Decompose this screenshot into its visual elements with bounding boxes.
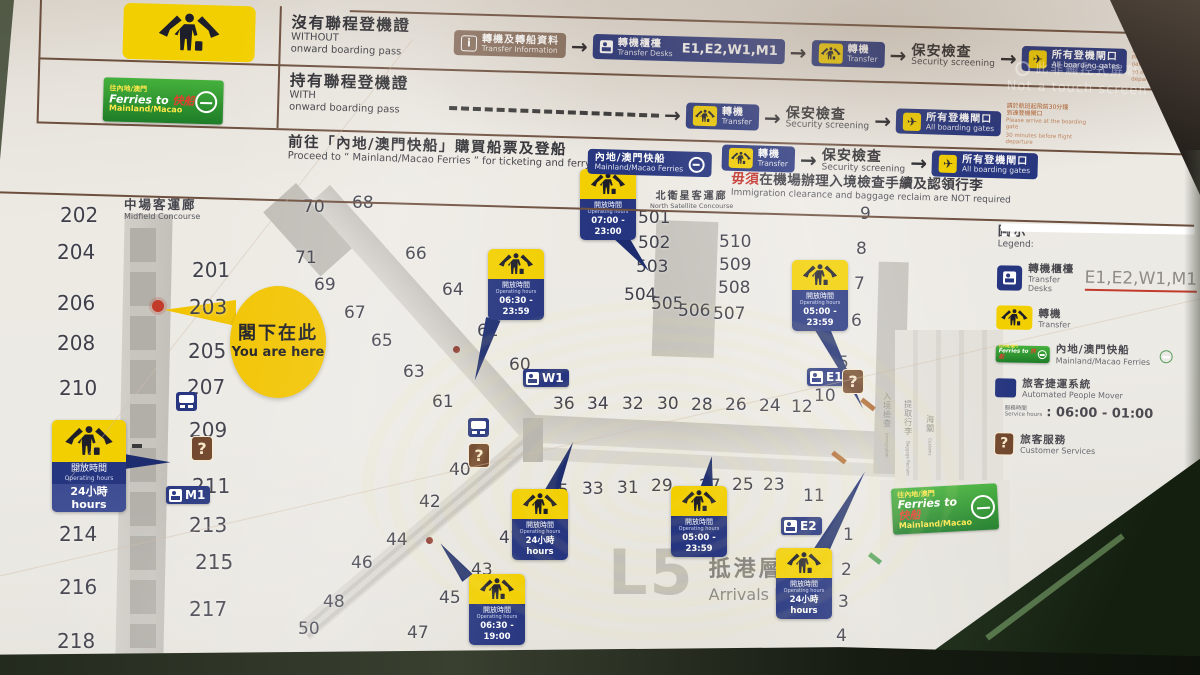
transfer-pictogram-sign <box>122 3 256 63</box>
all-boarding-gates-sign: ✈ 所有登機閘口All boarding gates <box>896 108 1002 136</box>
gate-number-label: 44 <box>386 530 408 550</box>
transfer-passenger-icon <box>792 260 848 290</box>
map-mark <box>132 444 142 448</box>
gate-number-label: 3 <box>838 592 849 612</box>
gate-number-label: 32 <box>622 394 644 414</box>
ferries-banner-icon: 往內地/澳門 Ferries to 快船 <box>996 345 1050 363</box>
operating-hours-sign: 開放時間 Operating hours 06:30 - 19:00 <box>469 574 525 645</box>
operating-hours-zh: 開放時間 <box>55 464 123 475</box>
operating-hours-sign: 開放時間 Operating hours 06:30 - 23:59 <box>488 249 544 320</box>
arrow-icon: → <box>571 34 588 58</box>
legend-transfer-desks: 轉機櫃檯Transfer Desks E1,E2,W1,M1 <box>997 262 1198 296</box>
question-mark-icon: ? <box>468 443 490 468</box>
transfer-sign: 轉機Transfer <box>721 145 795 173</box>
transfer-desk-sign: E2 <box>781 517 822 535</box>
transfer-passenger-icon <box>488 249 544 279</box>
operating-hours-sign: 開放時間 Operating hours 24小時hours <box>512 489 568 560</box>
gate-number-label: 47 <box>407 623 429 643</box>
transfer-desk-icon <box>526 372 539 385</box>
transfer-desk-sign: W1 <box>523 369 569 387</box>
ferries-banner: 往內地/澳門 Ferries to 快船 Mainland/Macao <box>103 77 224 124</box>
operating-hours-sign: 開放時間 Operating hours 05:00 - 23:59 <box>792 260 848 331</box>
operating-hours-zh: 開放時間 <box>779 580 829 588</box>
gate-number-label: 7 <box>854 274 865 294</box>
transfer-desk-icon <box>810 371 823 384</box>
all-boarding-gates-sign: ✈ 所有登機閘口All boarding gates <box>1021 46 1127 74</box>
gate-number-label: 205 <box>188 339 226 363</box>
operating-hours-en: Operating hours <box>779 588 829 594</box>
map-mark <box>152 300 164 312</box>
transfer-passenger-icon <box>137 8 242 57</box>
transfer-sign: 轉機Transfer <box>685 102 759 130</box>
apm-icon <box>995 378 1016 397</box>
gate-number-label: 510 <box>719 232 751 252</box>
gate-number-label: 24 <box>759 396 781 416</box>
gate-number-label: 219 <box>193 650 231 674</box>
transfer-desk-sign: M1 <box>166 486 210 504</box>
gate-number-label: 23 <box>763 475 785 495</box>
arrival-hall-label: 入境檢查 Immigration <box>878 392 896 457</box>
transfer-desk-icon <box>784 520 797 533</box>
transfer-desk-code: M1 <box>185 488 205 502</box>
transfer-passenger-icon <box>671 486 727 516</box>
arrival-hall-label: 海關 Customs <box>921 415 939 456</box>
operating-hours-value: 06:30 - 23:59 <box>491 296 541 316</box>
gate-number-label: 30 <box>657 394 679 414</box>
transfer-desk-code: E1 <box>826 370 843 384</box>
map-mark <box>426 537 433 544</box>
plane-icon: ✈ <box>939 155 957 173</box>
transfer-desk-icon <box>599 40 612 53</box>
map-mark <box>453 346 460 353</box>
gate-number-label: 31 <box>617 478 639 498</box>
gate-number-label: 49 <box>383 649 405 669</box>
transfer-desk-code: W1 <box>542 371 564 385</box>
gate-number-label: 25 <box>732 475 754 495</box>
you-are-here-balloon: 閣下在此 You are here <box>230 286 326 398</box>
gate-number-label: 45 <box>439 588 461 608</box>
operating-hours-en: Operating hours <box>674 526 724 532</box>
gate-number-label: 214 <box>59 522 97 546</box>
wayfinding-header: 往內地/澳門 Ferries to 快船 Mainland/Macao 沒有聯程… <box>0 0 1200 232</box>
midfield-concourse-core <box>130 228 156 648</box>
arrow-icon: → <box>800 148 817 172</box>
legend-apm-hours: 服務時間Service hours : 06:00 - 01:00 <box>1005 404 1195 422</box>
gate-number-label: 202 <box>60 203 98 227</box>
gate-number-label: 11 <box>803 486 825 506</box>
west-junction-shape <box>523 418 543 462</box>
gate-number-label: 46 <box>351 553 373 573</box>
ferry-banner-line3: Mainland/Macao <box>109 105 194 116</box>
operating-hours-zh: 開放時間 <box>515 521 565 529</box>
operating-hours-zh: 開放時間 <box>491 281 541 289</box>
operating-hours-sign: 開放時間 Operating hours 24小時hours <box>776 548 832 619</box>
gate-number-label: 217 <box>189 597 227 621</box>
gate-number-label: 66 <box>405 244 427 264</box>
security-screening-label: 保安檢查Security screening <box>785 106 869 132</box>
gate-number-label: 216 <box>59 575 97 599</box>
transfer-passenger-icon <box>469 574 525 604</box>
boarding-gate-note: 請於航班起飛前30分鐘到達登機閘口 Please arrive at the b… <box>1131 40 1200 86</box>
operating-hours-value: 24小時hours <box>779 595 829 615</box>
sign-pointer <box>435 539 472 582</box>
security-screening-label: 保安檢查Security screening <box>911 43 995 69</box>
gate-number-label: 71 <box>295 248 317 268</box>
transfer-desks-sign: 轉機櫃檯Transfer Desks E1,E2,W1,M1 <box>592 34 785 65</box>
transfer-desk-code: E2 <box>800 519 817 533</box>
gate-number-label: 29 <box>651 476 673 496</box>
ferry-logo-icon <box>688 156 704 172</box>
ferries-banner: 往內地/澳門 Ferries to 快船 Mainland/Macao <box>891 483 999 534</box>
arrow-icon: → <box>910 151 927 175</box>
gate-number-label: 203 <box>189 295 227 319</box>
gate-number-label: 36 <box>553 394 575 414</box>
mainland-macao-ferries-sign: 內地/澳門快船Mainland/Macao Ferries <box>587 149 711 178</box>
operating-hours-value: 24小時hours <box>52 484 126 512</box>
gate-number-label: 34 <box>587 394 609 414</box>
legend: 圖示 Legend: 轉機櫃檯Transfer Desks E1,E2,W1,M… <box>994 220 1198 458</box>
operating-hours-en: Operating hours <box>472 614 522 620</box>
gate-number-label: 26 <box>725 395 747 415</box>
transfer-passenger-icon <box>52 420 126 462</box>
gate-number-label: 204 <box>57 240 95 264</box>
transfer-passenger-icon <box>512 489 568 519</box>
operating-hours-en: Operating hours <box>491 289 541 295</box>
gate-number-label: 4 <box>836 626 847 646</box>
gate-number-label: 206 <box>57 291 95 315</box>
boarding-gate-note: 請於航班起飛前30分鐘到達登機閘口 Please arrive at the b… <box>1006 102 1102 148</box>
ferry-logo-icon <box>1160 350 1173 363</box>
info-icon: i <box>461 35 477 51</box>
ferry-logo-icon <box>971 494 996 519</box>
gate-number-label: 506 <box>678 301 710 321</box>
transfer-passenger-icon <box>996 306 1032 331</box>
gate-number-label: 215 <box>195 550 233 574</box>
operating-hours-value: 07:00 - 23:00 <box>583 216 633 236</box>
question-mark-icon: ? <box>842 369 864 394</box>
gate-number-label: 50 <box>298 619 320 639</box>
transfer-passenger-icon <box>818 43 843 64</box>
gate-number-label: 218 <box>57 629 95 653</box>
arrow-icon: → <box>664 102 681 126</box>
operating-hours-zh: 開放時間 <box>674 518 724 526</box>
security-screening-label: 保安檢查Security screening <box>821 148 905 174</box>
legend-transfer: 轉機Transfer <box>996 306 1196 333</box>
gate-number-label: 42 <box>419 492 441 512</box>
gate-number-label: 210 <box>59 376 97 400</box>
gate-number-label: 67 <box>344 303 366 323</box>
operating-hours-zh: 開放時間 <box>795 292 845 300</box>
gate-number-label: 10 <box>814 386 836 406</box>
gate-number-label: 65 <box>371 331 393 351</box>
gate-number-label: 2 <box>841 560 852 580</box>
gate-number-label: 33 <box>582 479 604 499</box>
gate-number-label: 28 <box>691 395 713 415</box>
arrow-icon: → <box>789 40 806 64</box>
arrow-icon: → <box>889 43 906 67</box>
all-boarding-gates-sign: ✈ 所有登機閘口All boarding gates <box>932 151 1038 179</box>
transfer-passenger-icon <box>729 148 754 169</box>
divider <box>277 6 282 128</box>
legend-desk-codes: E1,E2,W1,M1 <box>1084 268 1197 293</box>
gate-number-label: 63 <box>403 362 425 382</box>
dashed-route-line <box>449 106 659 118</box>
gate-number-label: 507 <box>713 304 745 324</box>
operating-hours-value: 24小時hours <box>515 536 565 556</box>
plane-icon: ✈ <box>903 112 921 130</box>
gate-number-label: 6 <box>851 311 862 331</box>
gate-number-label: 213 <box>189 513 227 537</box>
question-mark-icon: ? <box>191 436 213 461</box>
divider <box>37 0 42 121</box>
gate-number-label: 201 <box>192 258 230 282</box>
row-with-boarding-pass: 持有聯程登機證 WITH onward boarding pass <box>289 72 409 115</box>
arrow-icon: → <box>874 108 891 132</box>
gate-number-label: 48 <box>323 592 345 612</box>
operating-hours-zh: 開放時間 <box>472 606 522 614</box>
gate-number-label: 1 <box>843 525 854 545</box>
operating-hours-value: 05:00 - 23:59 <box>674 533 724 553</box>
legend-ferries: 往內地/澳門 Ferries to 快船 內地/澳門快船Mainland/Mac… <box>996 343 1196 368</box>
operating-hours-value: 05:00 - 23:59 <box>795 307 845 327</box>
operating-hours-sign: 開放時間 Operating hours 05:00 - 23:59 <box>671 486 727 557</box>
operating-hours-sign: 開放時間 Operating hours 24小時hours <box>52 420 126 512</box>
operating-hours-value: 06:30 - 19:00 <box>472 621 522 641</box>
gate-number-label: 509 <box>719 255 751 275</box>
transfer-desk-codes: E1,E2,W1,M1 <box>682 41 778 59</box>
ferry-logo-icon <box>195 91 218 114</box>
transfer-desk-icon <box>169 489 182 502</box>
legend-customer-services: ? 旅客服務Customer Services <box>994 432 1194 458</box>
route-with-pass: → 轉機Transfer → 保安檢查Security screening → … <box>449 87 1102 148</box>
legend-apm: 旅客捷運系統Automated People Mover <box>995 377 1195 402</box>
arrival-hall-label: 提取行李 Baggage Reclaim <box>899 400 917 476</box>
apm-icon <box>176 392 197 411</box>
operating-hours-en: Operating hours <box>795 300 845 306</box>
operating-hours-en: Operating hours <box>55 475 123 482</box>
gate-number-label: 502 <box>638 233 670 253</box>
transfer-passenger-icon <box>693 105 718 126</box>
arrow-icon: → <box>764 105 781 129</box>
arrow-icon: → <box>1000 46 1017 70</box>
plane-icon: ✈ <box>1029 50 1047 68</box>
transfer-desk-icon <box>997 265 1022 290</box>
gate-number-label: 208 <box>57 331 95 355</box>
transfer-sign: 轉機Transfer <box>811 40 885 68</box>
question-mark-icon: ? <box>994 432 1014 455</box>
gate-number-label: 69 <box>314 275 336 295</box>
gate-number-label: 8 <box>856 239 867 259</box>
gate-number-label: 12 <box>791 397 813 417</box>
airport-map-sign-photo: 往內地/澳門 Ferries to 快船 Mainland/Macao 沒有聯程… <box>0 0 1200 675</box>
operating-hours-en: Operating hours <box>515 529 565 535</box>
gate-number-label: 508 <box>718 278 750 298</box>
map-board: 往內地/澳門 Ferries to 快船 Mainland/Macao 沒有聯程… <box>0 0 1200 660</box>
map-mark <box>860 398 876 412</box>
gate-number-label: 64 <box>442 280 464 300</box>
apm-icon <box>468 418 489 437</box>
row-without-boarding-pass: 沒有聯程登機證 WITHOUT onward boarding pass <box>291 14 411 57</box>
transfer-passenger-icon <box>776 548 832 578</box>
transfer-information-sign: i 轉機及轉船資料Transfer Information <box>454 30 567 58</box>
gate-number-label: 61 <box>432 392 454 412</box>
